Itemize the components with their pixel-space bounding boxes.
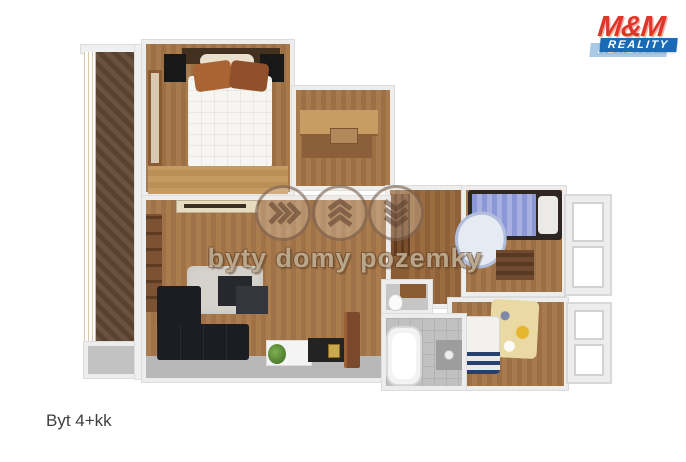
sofa-seat	[157, 324, 249, 360]
balcony-railing	[84, 52, 96, 342]
floorplan-page: byty domy pozemky M&M HOLDING REALITY RE…	[0, 0, 686, 462]
kitchen-counter-item	[328, 344, 340, 358]
bedroom-mirror	[148, 70, 162, 166]
study-desk-drawer	[330, 128, 358, 144]
window1-pane-bottom	[572, 246, 604, 288]
nightstand-left	[164, 54, 186, 82]
hallway-wardrobe	[390, 194, 410, 256]
bed-pillow-left	[192, 59, 234, 92]
window1-pane-top	[572, 202, 604, 242]
vanity-sink	[444, 350, 454, 360]
logo-mm-text: M&M	[597, 14, 686, 40]
kitchen-fridge	[344, 312, 360, 368]
kids1-pillow	[538, 196, 558, 234]
wc-cabinet	[400, 284, 426, 298]
ac-unit-vent	[184, 204, 246, 208]
kitchen-plant	[268, 344, 286, 364]
coffee-table-2	[236, 286, 268, 314]
balcony-deck	[96, 52, 138, 342]
logo-reality-band: REALITY	[599, 38, 678, 52]
bed-pillow-right	[228, 60, 269, 92]
page-title: Byt 4+kk	[46, 411, 112, 431]
kids1-dresser	[496, 250, 534, 280]
window2-pane-top	[574, 310, 604, 340]
bedroom-bench	[148, 166, 288, 194]
bathtub-basin	[392, 333, 416, 379]
mm-reality-logo: M&M HOLDING REALITY REALITY	[598, 14, 686, 66]
window2-pane-bottom	[574, 344, 604, 376]
floorplan	[0, 0, 686, 462]
balcony-gray-floor	[84, 342, 138, 378]
toilet	[388, 294, 403, 311]
